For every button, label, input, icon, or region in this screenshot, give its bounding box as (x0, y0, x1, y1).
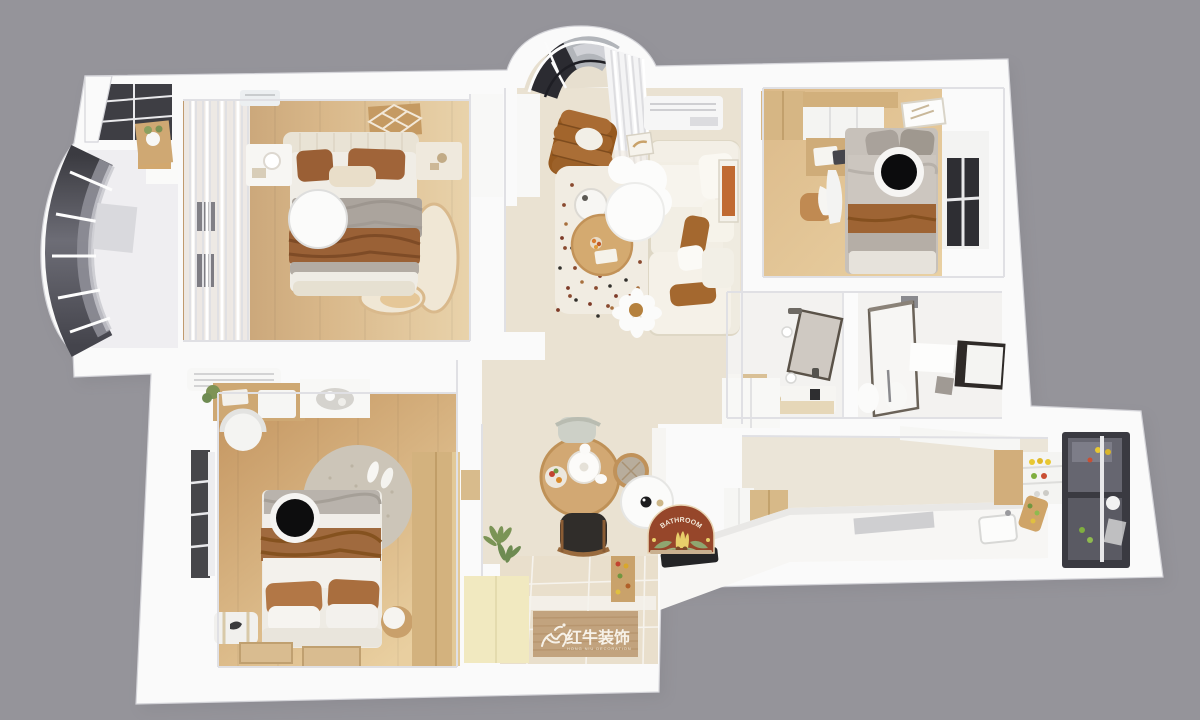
svg-text:HONG NIU DECORATION: HONG NIU DECORATION (567, 646, 632, 651)
svg-text:红牛装饰: 红牛装饰 (566, 628, 630, 647)
